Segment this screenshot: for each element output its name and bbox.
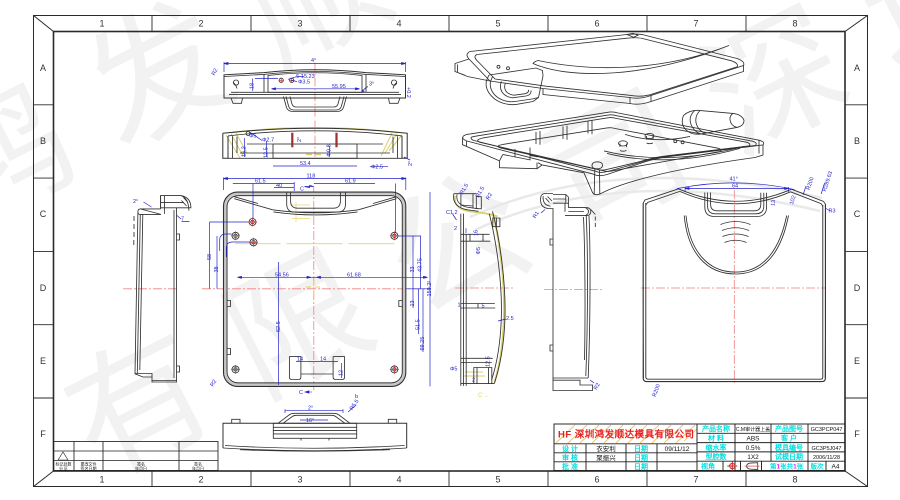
svg-text:批 准: 批 准 [562, 462, 578, 471]
svg-text:客 户: 客 户 [780, 434, 797, 443]
svg-text:产品图号: 产品图号 [775, 424, 803, 433]
svg-text:53.4: 53.4 [300, 161, 311, 167]
svg-text:R2: R2 [593, 382, 602, 391]
svg-text:2: 2 [198, 19, 203, 29]
svg-text:第1张共1张: 第1张共1张 [770, 461, 804, 470]
svg-text:Φ3.5: Φ3.5 [298, 79, 310, 85]
svg-text:62.5: 62.5 [276, 321, 282, 332]
svg-text:12.5: 12.5 [264, 147, 270, 158]
svg-text:Φ2.5: Φ2.5 [371, 165, 383, 171]
svg-text:C: C [40, 209, 47, 219]
svg-text:E: E [40, 356, 46, 366]
svg-text:Φ5: Φ5 [450, 367, 457, 373]
svg-text:16.2: 16.2 [242, 146, 248, 157]
svg-text:16°: 16° [306, 418, 314, 424]
svg-text:年月日: 年月日 [135, 465, 147, 471]
svg-text:A: A [854, 63, 860, 73]
svg-text:R200: R200 [652, 383, 662, 397]
svg-text:B: B [854, 136, 860, 146]
svg-text:7: 7 [693, 19, 698, 29]
svg-text:R1: R1 [532, 211, 541, 220]
svg-text:日期: 日期 [634, 453, 648, 462]
svg-text:159.2²: 159.2² [427, 281, 433, 297]
svg-text:7: 7 [693, 475, 698, 485]
svg-text:8: 8 [792, 19, 797, 29]
svg-text:118: 118 [307, 174, 316, 180]
svg-text:64: 64 [732, 183, 738, 189]
svg-text:61.68: 61.68 [347, 272, 361, 278]
svg-text:33: 33 [410, 266, 416, 272]
svg-text:2.5: 2.5 [506, 316, 514, 322]
svg-text:试模日期: 试模日期 [775, 452, 803, 461]
svg-text:58: 58 [207, 254, 213, 260]
svg-text:2: 2 [198, 475, 203, 485]
svg-text:2°: 2° [133, 199, 138, 205]
svg-text:102: 102 [789, 195, 798, 206]
svg-text:C ←: C ← [478, 393, 490, 399]
svg-text:缩水率: 缩水率 [706, 443, 727, 452]
svg-text:5: 5 [495, 475, 500, 485]
svg-text:41°: 41° [730, 176, 738, 182]
svg-text:HF 深圳鸿发顺达模具有限公司: HF 深圳鸿发顺达模具有限公司 [558, 429, 694, 441]
svg-text:聚振兴: 聚振兴 [596, 453, 616, 462]
svg-text:日期: 日期 [634, 462, 648, 471]
svg-text:40: 40 [276, 183, 282, 189]
svg-text:4: 4 [396, 475, 401, 485]
svg-text:6: 6 [594, 19, 599, 29]
svg-text:GC3PCP047: GC3PCP047 [811, 427, 843, 433]
svg-text:E: E [854, 356, 860, 366]
svg-text:43.75: 43.75 [418, 258, 424, 272]
svg-text:版次: 版次 [810, 461, 825, 470]
svg-text:51.5: 51.5 [416, 319, 422, 330]
svg-text:1X2: 1X2 [747, 454, 759, 461]
svg-text:3°: 3° [369, 82, 374, 88]
svg-text:2: 2 [454, 226, 457, 232]
svg-text:14: 14 [297, 357, 303, 363]
svg-text:Φ2.7: Φ2.7 [262, 138, 274, 144]
svg-text:6: 6 [594, 475, 599, 485]
svg-text:签名日期: 签名日期 [81, 465, 97, 471]
svg-text:Φ5: Φ5 [249, 134, 256, 140]
svg-text:12.5: 12.5 [486, 356, 492, 367]
svg-text:1: 1 [458, 303, 461, 309]
svg-text:1: 1 [99, 475, 104, 485]
svg-text:模具编号: 模具编号 [775, 443, 803, 452]
svg-text:38: 38 [214, 266, 220, 272]
svg-text:+0.2: +0.2 [405, 87, 411, 98]
svg-text:C: C [854, 209, 861, 219]
svg-text:Φ5: Φ5 [476, 247, 482, 254]
svg-text:69.25: 69.25 [420, 337, 426, 351]
svg-text:年月日: 年月日 [192, 465, 204, 471]
svg-text:D: D [854, 283, 861, 293]
svg-text:12: 12 [339, 370, 345, 376]
svg-text:09/11/12: 09/11/12 [665, 446, 690, 453]
svg-text:R3: R3 [829, 209, 836, 215]
svg-text:审 核: 审 核 [562, 453, 578, 462]
svg-text:8: 8 [792, 475, 797, 485]
svg-text:GC3P5J047: GC3P5J047 [812, 446, 842, 452]
svg-text:R289.63: R289.63 [822, 171, 834, 193]
svg-text:B: B [40, 136, 46, 146]
svg-text:2: 2 [472, 378, 475, 384]
svg-text:2006/11/28: 2006/11/28 [813, 455, 840, 461]
svg-text:4: 4 [396, 19, 401, 29]
svg-text:设 计: 设 计 [562, 444, 578, 453]
svg-text:产品名称: 产品名称 [702, 424, 730, 433]
svg-text:A: A [40, 63, 46, 73]
svg-text:4°: 4° [311, 58, 316, 64]
svg-text:3: 3 [297, 475, 302, 485]
svg-text:Φ0.8: Φ0.8 [327, 144, 333, 156]
svg-text:视角: 视角 [701, 461, 715, 470]
svg-text:16: 16 [474, 230, 480, 236]
svg-text:13: 13 [770, 199, 777, 206]
svg-text:型腔数: 型腔数 [706, 452, 728, 461]
svg-text:C1.2: C1.2 [446, 210, 458, 216]
svg-text:3: 3 [297, 19, 302, 29]
svg-text:A4: A4 [832, 463, 840, 470]
svg-text:1: 1 [99, 19, 104, 29]
svg-text:54.56: 54.56 [275, 272, 289, 278]
svg-text:ABS: ABS [746, 436, 760, 443]
svg-text:2°: 2° [408, 161, 414, 166]
svg-text:61.5: 61.5 [255, 179, 266, 185]
svg-text:材 料: 材 料 [707, 434, 724, 443]
svg-text:衣安利: 衣安利 [596, 444, 616, 453]
svg-text:C: C [300, 186, 304, 192]
svg-text:14: 14 [320, 357, 326, 363]
svg-text:分 区: 分 区 [59, 465, 68, 471]
svg-text:C.M审计器上盖: C.M审计器上盖 [736, 426, 770, 433]
svg-text:F: F [854, 429, 860, 439]
svg-text:R2: R2 [210, 379, 219, 388]
svg-text:日期: 日期 [634, 444, 648, 453]
svg-text:55.95: 55.95 [332, 84, 346, 90]
svg-text:61.9: 61.9 [345, 179, 356, 185]
svg-text:2°: 2° [297, 137, 303, 142]
svg-text:5: 5 [482, 304, 485, 310]
svg-text:7: 7 [181, 217, 184, 223]
svg-text:D: D [40, 283, 47, 293]
svg-text:18: 18 [250, 83, 256, 89]
svg-text:0.5%: 0.5% [746, 445, 761, 452]
svg-text:2°: 2° [308, 405, 313, 411]
svg-text:R200: R200 [806, 177, 816, 191]
svg-text:C: C [299, 390, 303, 396]
svg-text:13: 13 [410, 300, 416, 306]
svg-text:R5.5: R5.5 [349, 399, 361, 412]
svg-text:5: 5 [495, 19, 500, 29]
svg-text:F: F [40, 429, 46, 439]
